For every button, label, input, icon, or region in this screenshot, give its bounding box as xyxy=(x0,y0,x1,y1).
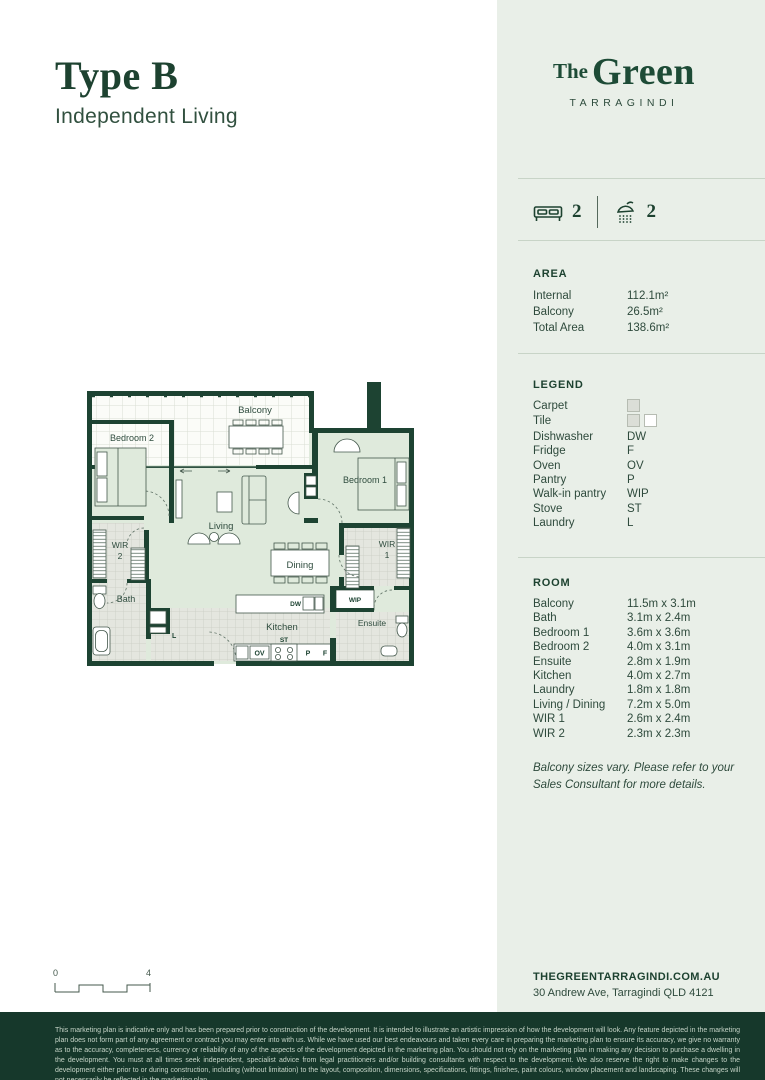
label-bedroom2: Bedroom 2 xyxy=(110,433,154,443)
legend-value: DW xyxy=(627,430,755,444)
legend-value: OV xyxy=(627,459,755,473)
legend-row: Walk-in pantry WIP xyxy=(533,487,755,501)
label-dw: DW xyxy=(290,601,302,608)
legend-label: Dishwasher xyxy=(533,430,627,444)
brand-location: TARRAGINDI xyxy=(519,97,729,109)
label-living: Living xyxy=(209,521,234,532)
label-ov: OV xyxy=(254,651,264,658)
room-label: WIR 1 xyxy=(533,712,627,726)
label-balcony: Balcony xyxy=(238,405,272,416)
area-label: Total Area xyxy=(533,320,627,336)
legend-section: LEGEND Carpet Tile Dishwasher xyxy=(533,379,755,531)
room-rows: Balcony 11.5m x 3.1m Bath 3.1m x 2.4m Be… xyxy=(533,597,755,741)
brand-the: The xyxy=(553,59,588,83)
label-p: P xyxy=(306,651,311,658)
label-st: ST xyxy=(280,637,288,644)
legend-row: Laundry L xyxy=(533,516,755,530)
legend-value: F xyxy=(627,444,755,458)
room-dimensions: 11.5m x 3.1m xyxy=(627,597,755,611)
area-row: Total Area 138.6m² xyxy=(533,320,755,336)
legend-row: Fridge F xyxy=(533,444,755,458)
legend-swatch xyxy=(627,414,657,427)
legend-heading: LEGEND xyxy=(533,379,755,391)
area-value: 26.5m² xyxy=(627,304,755,320)
room-label: Living / Dining xyxy=(533,698,627,712)
scale-end: 4 xyxy=(146,968,151,978)
area-heading: AREA xyxy=(533,268,755,280)
legend-label: Oven xyxy=(533,459,627,473)
room-dimensions: 2.3m x 2.3m xyxy=(627,727,755,741)
legend-row: Oven OV xyxy=(533,459,755,473)
room-row: Kitchen 4.0m x 2.7m xyxy=(533,669,755,683)
brand-logo: TheGreen TARRAGINDI xyxy=(519,50,729,109)
area-section: AREA Internal 112.1m² Balcony 26.5m² Tot… xyxy=(533,268,755,336)
legend-value xyxy=(627,399,755,414)
area-value: 138.6m² xyxy=(627,320,755,336)
room-dimensions: 4.0m x 2.7m xyxy=(627,669,755,683)
website: THEGREENTARRAGINDI.COM.AU xyxy=(533,971,755,983)
legend-row: Dishwasher DW xyxy=(533,430,755,444)
legend-row: Tile xyxy=(533,414,755,429)
room-dimensions: 3.1m x 2.4m xyxy=(627,611,755,625)
address: 30 Andrew Ave, Tarragindi QLD 4121 xyxy=(533,987,755,999)
room-dimensions: 2.8m x 1.9m xyxy=(627,655,755,669)
floor-plan-drawing: Balcony Bedroom 2 Bedroom 1 Living Dinin… xyxy=(84,380,420,674)
footer-bar: This marketing plan is indicative only a… xyxy=(0,1012,765,1080)
legend-label: Stove xyxy=(533,502,627,516)
room-dimensions: 1.8m x 1.8m xyxy=(627,683,755,697)
balcony-note: Balcony sizes vary. Please refer to your… xyxy=(533,760,749,794)
divider xyxy=(518,557,765,558)
label-dining: Dining xyxy=(287,560,314,571)
label-ensuite: Ensuite xyxy=(358,618,387,628)
room-label: WIR 2 xyxy=(533,727,627,741)
room-label: Bath xyxy=(533,611,627,625)
contact-block: THEGREENTARRAGINDI.COM.AU 30 Andrew Ave,… xyxy=(533,971,755,999)
legend-value: P xyxy=(627,473,755,487)
room-row: WIR 2 2.3m x 2.3m xyxy=(533,727,755,741)
legend-row: Stove ST xyxy=(533,502,755,516)
floor-plan: Balcony Bedroom 2 Bedroom 1 Living Dinin… xyxy=(84,380,420,674)
legend-label: Laundry xyxy=(533,516,627,530)
legend-value: ST xyxy=(627,502,755,516)
legend-label: Tile xyxy=(533,414,627,429)
legend-value xyxy=(627,414,755,429)
legend-row: Carpet xyxy=(533,399,755,414)
label-kitchen: Kitchen xyxy=(266,622,298,633)
room-label: Bedroom 2 xyxy=(533,640,627,654)
room-row: Bath 3.1m x 2.4m xyxy=(533,611,755,625)
room-dimensions: 3.6m x 3.6m xyxy=(627,626,755,640)
divider xyxy=(518,240,765,241)
area-label: Balcony xyxy=(533,304,627,320)
legend-rows: Carpet Tile Dishwasher DW Fridge xyxy=(533,399,755,531)
area-rows: Internal 112.1m² Balcony 26.5m² Total Ar… xyxy=(533,288,755,336)
legend-value: WIP xyxy=(627,487,755,501)
marketing-plan-page: Type B Independent Living xyxy=(0,0,765,1080)
area-row: Internal 112.1m² xyxy=(533,288,755,304)
legend-value: L xyxy=(627,516,755,530)
room-heading: ROOM xyxy=(533,577,755,589)
room-label: Bedroom 1 xyxy=(533,626,627,640)
divider xyxy=(518,353,765,354)
room-section: ROOM Balcony 11.5m x 3.1m Bath 3.1m x 2.… xyxy=(533,577,755,741)
bed-bath-stats: 2 2 xyxy=(533,192,656,232)
label-wir2: WIR xyxy=(112,540,129,550)
label-f: F xyxy=(323,651,328,658)
area-value: 112.1m² xyxy=(627,288,755,304)
scale-line xyxy=(55,983,150,992)
divider xyxy=(518,178,765,179)
room-dimensions: 2.6m x 2.4m xyxy=(627,712,755,726)
bath-count: 2 xyxy=(647,201,657,223)
title-block: Type B Independent Living xyxy=(55,54,238,129)
room-label: Ensuite xyxy=(533,655,627,669)
room-row: Balcony 11.5m x 3.1m xyxy=(533,597,755,611)
room-row: Bedroom 2 4.0m x 3.1m xyxy=(533,640,755,654)
bed-count: 2 xyxy=(572,201,582,223)
area-label: Internal xyxy=(533,288,627,304)
legend-label: Walk-in pantry xyxy=(533,487,627,501)
room-row: Bedroom 1 3.6m x 3.6m xyxy=(533,626,755,640)
room-dimensions: 7.2m x 5.0m xyxy=(627,698,755,712)
legend-swatch xyxy=(627,399,640,412)
svg-text:1: 1 xyxy=(385,550,390,560)
bed-icon xyxy=(533,202,563,223)
label-bath: Bath xyxy=(117,594,136,604)
label-wir1: WIR xyxy=(379,539,396,549)
info-panel: TheGreen TARRAGINDI 2 xyxy=(497,0,765,1012)
room-label: Laundry xyxy=(533,683,627,697)
label-bedroom1: Bedroom 1 xyxy=(343,475,387,485)
brand-green: Green xyxy=(592,51,695,93)
label-wip: WIP xyxy=(349,597,362,604)
room-dimensions: 4.0m x 3.1m xyxy=(627,640,755,654)
scale-start: 0 xyxy=(53,968,58,978)
label-laundry: L xyxy=(172,633,177,640)
room-row: Laundry 1.8m x 1.8m xyxy=(533,683,755,697)
legend-row: Pantry P xyxy=(533,473,755,487)
room-row: WIR 1 2.6m x 2.4m xyxy=(533,712,755,726)
disclaimer-text: This marketing plan is indicative only a… xyxy=(55,1026,740,1080)
legend-label: Carpet xyxy=(533,399,627,414)
stat-divider xyxy=(597,196,598,228)
shower-icon xyxy=(613,200,638,225)
svg-text:2: 2 xyxy=(118,551,123,561)
page-title: Type B xyxy=(55,54,238,98)
scale-bar: 0 4 xyxy=(52,966,157,1002)
room-label: Kitchen xyxy=(533,669,627,683)
page-subtitle: Independent Living xyxy=(55,105,238,129)
room-row: Living / Dining 7.2m x 5.0m xyxy=(533,698,755,712)
legend-label: Fridge xyxy=(533,444,627,458)
room-label: Balcony xyxy=(533,597,627,611)
legend-label: Pantry xyxy=(533,473,627,487)
area-row: Balcony 26.5m² xyxy=(533,304,755,320)
room-row: Ensuite 2.8m x 1.9m xyxy=(533,655,755,669)
